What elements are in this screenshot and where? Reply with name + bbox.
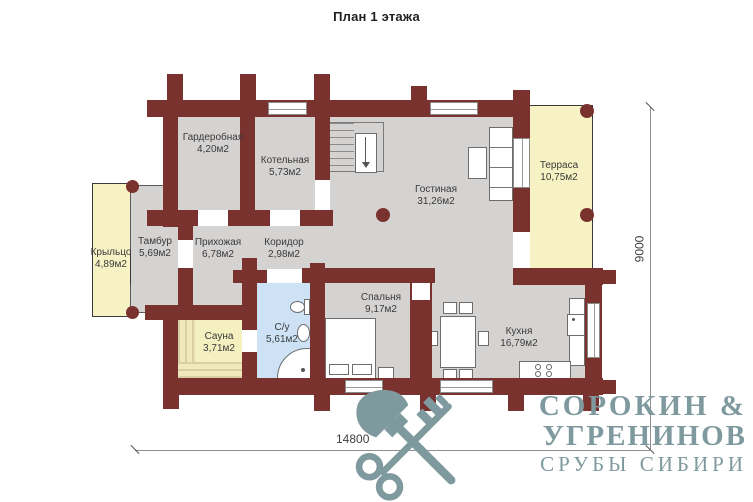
pillow <box>352 364 372 375</box>
room-name: Тамбур <box>138 236 172 247</box>
log-end <box>167 74 183 102</box>
terrace-post <box>580 208 594 222</box>
room-area: 31,26м2 <box>417 196 454 207</box>
room-name: Прихожая <box>195 237 241 248</box>
bathroom-door-opening <box>267 269 302 283</box>
porch-post <box>126 180 139 193</box>
stove-burner <box>546 371 552 377</box>
room-name: Котельная <box>261 155 309 166</box>
toilet <box>290 301 305 313</box>
porch-divider-upper <box>130 186 131 250</box>
wall <box>242 258 257 380</box>
room-name: Кухня <box>506 326 533 337</box>
logo-text: СОРОКИН & УГРЕНИНОВ СРУБЫ СИБИРИ <box>495 391 747 478</box>
shower-drain <box>301 368 305 372</box>
chair <box>478 331 489 346</box>
fridge <box>567 314 585 336</box>
room-area: 3,71м2 <box>203 343 235 354</box>
page-title: План 1 этажа <box>0 9 753 24</box>
stove-burner <box>546 364 552 370</box>
logo-tagline: СРУБЫ СИБИРИ <box>495 451 747 478</box>
door-opening <box>198 210 228 226</box>
wall <box>163 305 178 395</box>
bedroom-door-opening <box>412 283 430 300</box>
room-area: 9,17м2 <box>365 304 397 315</box>
room-name: Сауна <box>205 331 234 342</box>
room-name: Гардеробная <box>183 132 244 143</box>
log-end <box>601 270 616 284</box>
log-end <box>163 393 179 409</box>
room-label-terrace: Терраса 10,75м2 <box>540 160 578 184</box>
dimension-label-height: 9000 <box>632 236 646 263</box>
room-label-living: Гостиная 31,26м2 <box>415 184 457 208</box>
log-end <box>240 74 256 102</box>
wall <box>310 263 325 380</box>
logo-name-line2: УГРЕНИНОВ <box>495 421 747 451</box>
kitchen-counter-bottom <box>519 361 571 379</box>
room-label-boiler: Котельная 5,73м2 <box>261 155 309 179</box>
room-area: 5,61м2 <box>266 334 298 345</box>
staircase-arrow-line <box>365 137 366 163</box>
room-area: 4,89м2 <box>95 259 127 270</box>
room-label-porch: Крыльцо 4,89м2 <box>91 247 132 271</box>
coffee-table <box>468 147 487 179</box>
room-label-wardrobe: Гардеробная 4,20м2 <box>183 132 244 156</box>
log-end <box>147 210 165 226</box>
fridge-handle <box>572 318 575 321</box>
log-end <box>411 86 427 102</box>
terrace-door <box>513 138 530 188</box>
room-area: 5,73м2 <box>269 167 301 178</box>
log-end <box>314 393 330 411</box>
room-name: Терраса <box>540 160 578 171</box>
chair <box>443 302 457 314</box>
pillow <box>329 364 349 375</box>
room-area: 2,98м2 <box>268 249 300 260</box>
room-label-corridor: Коридор 2,98м2 <box>264 237 304 261</box>
terrace-post <box>580 104 594 118</box>
room-label-bathroom: С/у 5,61м2 <box>266 322 298 346</box>
sink <box>297 324 310 342</box>
window <box>587 303 600 358</box>
floor-plan-page: План 1 этажа <box>0 0 753 502</box>
room-label-bedroom: Спальня 9,17м2 <box>361 292 401 316</box>
axe-and-key-icon <box>342 383 484 501</box>
staircase-arrow-head <box>362 162 370 168</box>
room-area: 5,69м2 <box>139 248 171 259</box>
wall <box>163 100 178 227</box>
window <box>430 102 478 115</box>
wall <box>240 100 255 226</box>
living-room-column <box>376 208 390 222</box>
room-area: 16,79м2 <box>500 338 537 349</box>
door-opening <box>270 210 300 226</box>
room-area: 10,75м2 <box>540 172 577 183</box>
room-name: Спальня <box>361 292 401 303</box>
room-area: 4,20м2 <box>197 144 229 155</box>
room-name: Гостиная <box>415 184 457 195</box>
room-label-vestibule: Тамбур 5,69м2 <box>138 236 172 260</box>
door-opening <box>178 240 193 268</box>
door-opening <box>315 180 330 210</box>
room-area: 6,78м2 <box>202 249 234 260</box>
terrace-opening <box>513 232 530 268</box>
dining-table <box>440 316 476 368</box>
log-end <box>147 305 165 320</box>
sauna-door-opening <box>242 330 257 352</box>
room-name: Коридор <box>264 237 304 248</box>
room-label-hallway: Прихожая 6,78м2 <box>195 237 241 261</box>
window <box>268 102 307 115</box>
sofa <box>489 127 513 201</box>
log-end <box>147 100 165 117</box>
stove-burner <box>535 364 541 370</box>
room-label-kitchen: Кухня 16,79м2 <box>500 326 537 350</box>
room-label-sauna: Сауна 3,71м2 <box>203 331 235 355</box>
terrace-area <box>528 105 593 270</box>
chair <box>459 302 473 314</box>
room-name: Крыльцо <box>91 247 132 258</box>
stove-burner <box>535 371 541 377</box>
porch-post <box>126 306 139 319</box>
logo-name-line1: СОРОКИН & <box>495 391 747 421</box>
room-name: С/у <box>275 322 290 333</box>
log-end <box>314 74 330 102</box>
